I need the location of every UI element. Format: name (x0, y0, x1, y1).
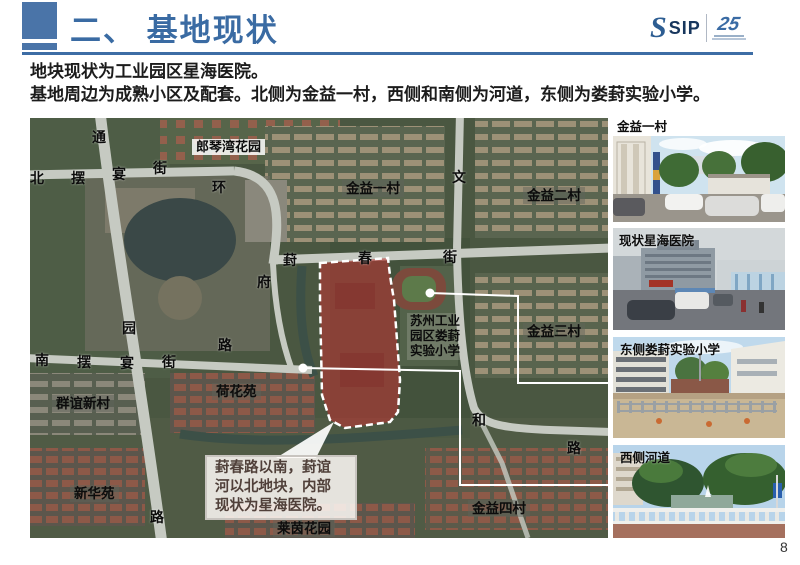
photo-label-west-river: 西侧河道 (620, 447, 670, 466)
intro-line-2: 基地周边为成熟小区及配套。北侧为金益一村，西侧和南侧为河道，东侧为娄葑实验小学。 (30, 83, 775, 106)
road-label: 街 (153, 158, 167, 178)
road-label: 路 (150, 507, 164, 527)
road-label: 路 (567, 438, 581, 458)
anniversary-number: 25 (716, 16, 741, 34)
photo-jinyi-village-image (613, 136, 785, 222)
satellite-map: 通 北 摆 宴 街 环 郎琴湾花园 金益一村 文 金益二村 葑 春 街 府 苏州… (30, 118, 608, 538)
road-label: 府 (257, 272, 271, 292)
sip-logo: S SIP 25 (650, 11, 746, 45)
logo-divider (706, 14, 707, 42)
road-label: 春 (358, 248, 372, 268)
header-rule (22, 52, 753, 55)
road-label: 环 (212, 177, 226, 197)
photo-label-jinyi-village: 金益一村 (617, 116, 667, 135)
road-label: 葑 (283, 250, 297, 270)
road-label: 摆 (77, 352, 91, 372)
site-note-box: 葑春路以南，葑谊 河以北地块，内部 现状为星海医院。 (205, 455, 357, 520)
sip-logo-text: SIP (669, 18, 701, 39)
road-label: 北 (30, 168, 44, 188)
district-label-hehua: 荷花苑 (212, 383, 261, 400)
road-label: 宴 (112, 164, 126, 184)
photo-jinyi-village (613, 136, 785, 222)
intro-text: 地块现状为工业园区星海医院。 基地周边为成熟小区及配套。北侧为金益一村，西侧和南… (30, 60, 775, 106)
district-label-langqinwan: 郎琴湾花园 (192, 139, 265, 155)
photo-label-loufeng-school: 东侧娄葑实验小学 (620, 339, 720, 358)
header-accent-square (22, 2, 57, 39)
page-title: 二、 基地现状 (70, 5, 279, 50)
road-label: 路 (218, 335, 232, 355)
district-label-jinyi-2: 金益二村 (523, 187, 585, 204)
road-label: 园 (122, 318, 136, 338)
road-label: 摆 (71, 168, 85, 188)
road-label: 街 (443, 247, 457, 267)
anniversary-logo: 25 (712, 16, 746, 40)
district-label-qunyi: 群谊新村 (52, 395, 114, 412)
anniversary-subtext-line (714, 35, 744, 37)
school-label: 苏州工业 园区娄葑 实验小学 (407, 313, 463, 360)
anniversary-subtext-line (712, 38, 746, 40)
road-label: 和 (472, 410, 486, 430)
district-label-laiyin: 莱茵花园 (273, 520, 335, 537)
district-label-jinyi-1: 金益一村 (342, 180, 404, 197)
callout-dot-river (299, 364, 308, 373)
header-accent-bar (22, 43, 57, 50)
road-label: 通 (92, 127, 106, 147)
callout-dot-school (426, 289, 435, 298)
photo-label-xinghai-hospital: 现状星海医院 (619, 230, 694, 249)
road-label: 宴 (120, 353, 134, 373)
road-label: 南 (35, 350, 49, 370)
district-label-jinyi-4: 金益四村 (468, 500, 530, 517)
district-label-jinyi-3: 金益三村 (523, 323, 585, 340)
district-label-xinhua: 新华苑 (70, 485, 119, 502)
page-number: 8 (780, 539, 788, 555)
road-label: 文 (452, 167, 466, 187)
intro-line-1: 地块现状为工业园区星海医院。 (30, 60, 775, 83)
slide-page: 二、 基地现状 S SIP 25 地块现状为工业园区星海医院。 基地周边为成熟小… (0, 0, 800, 565)
sip-logo-s-glyph: S (650, 13, 667, 43)
road-label: 街 (162, 352, 176, 372)
